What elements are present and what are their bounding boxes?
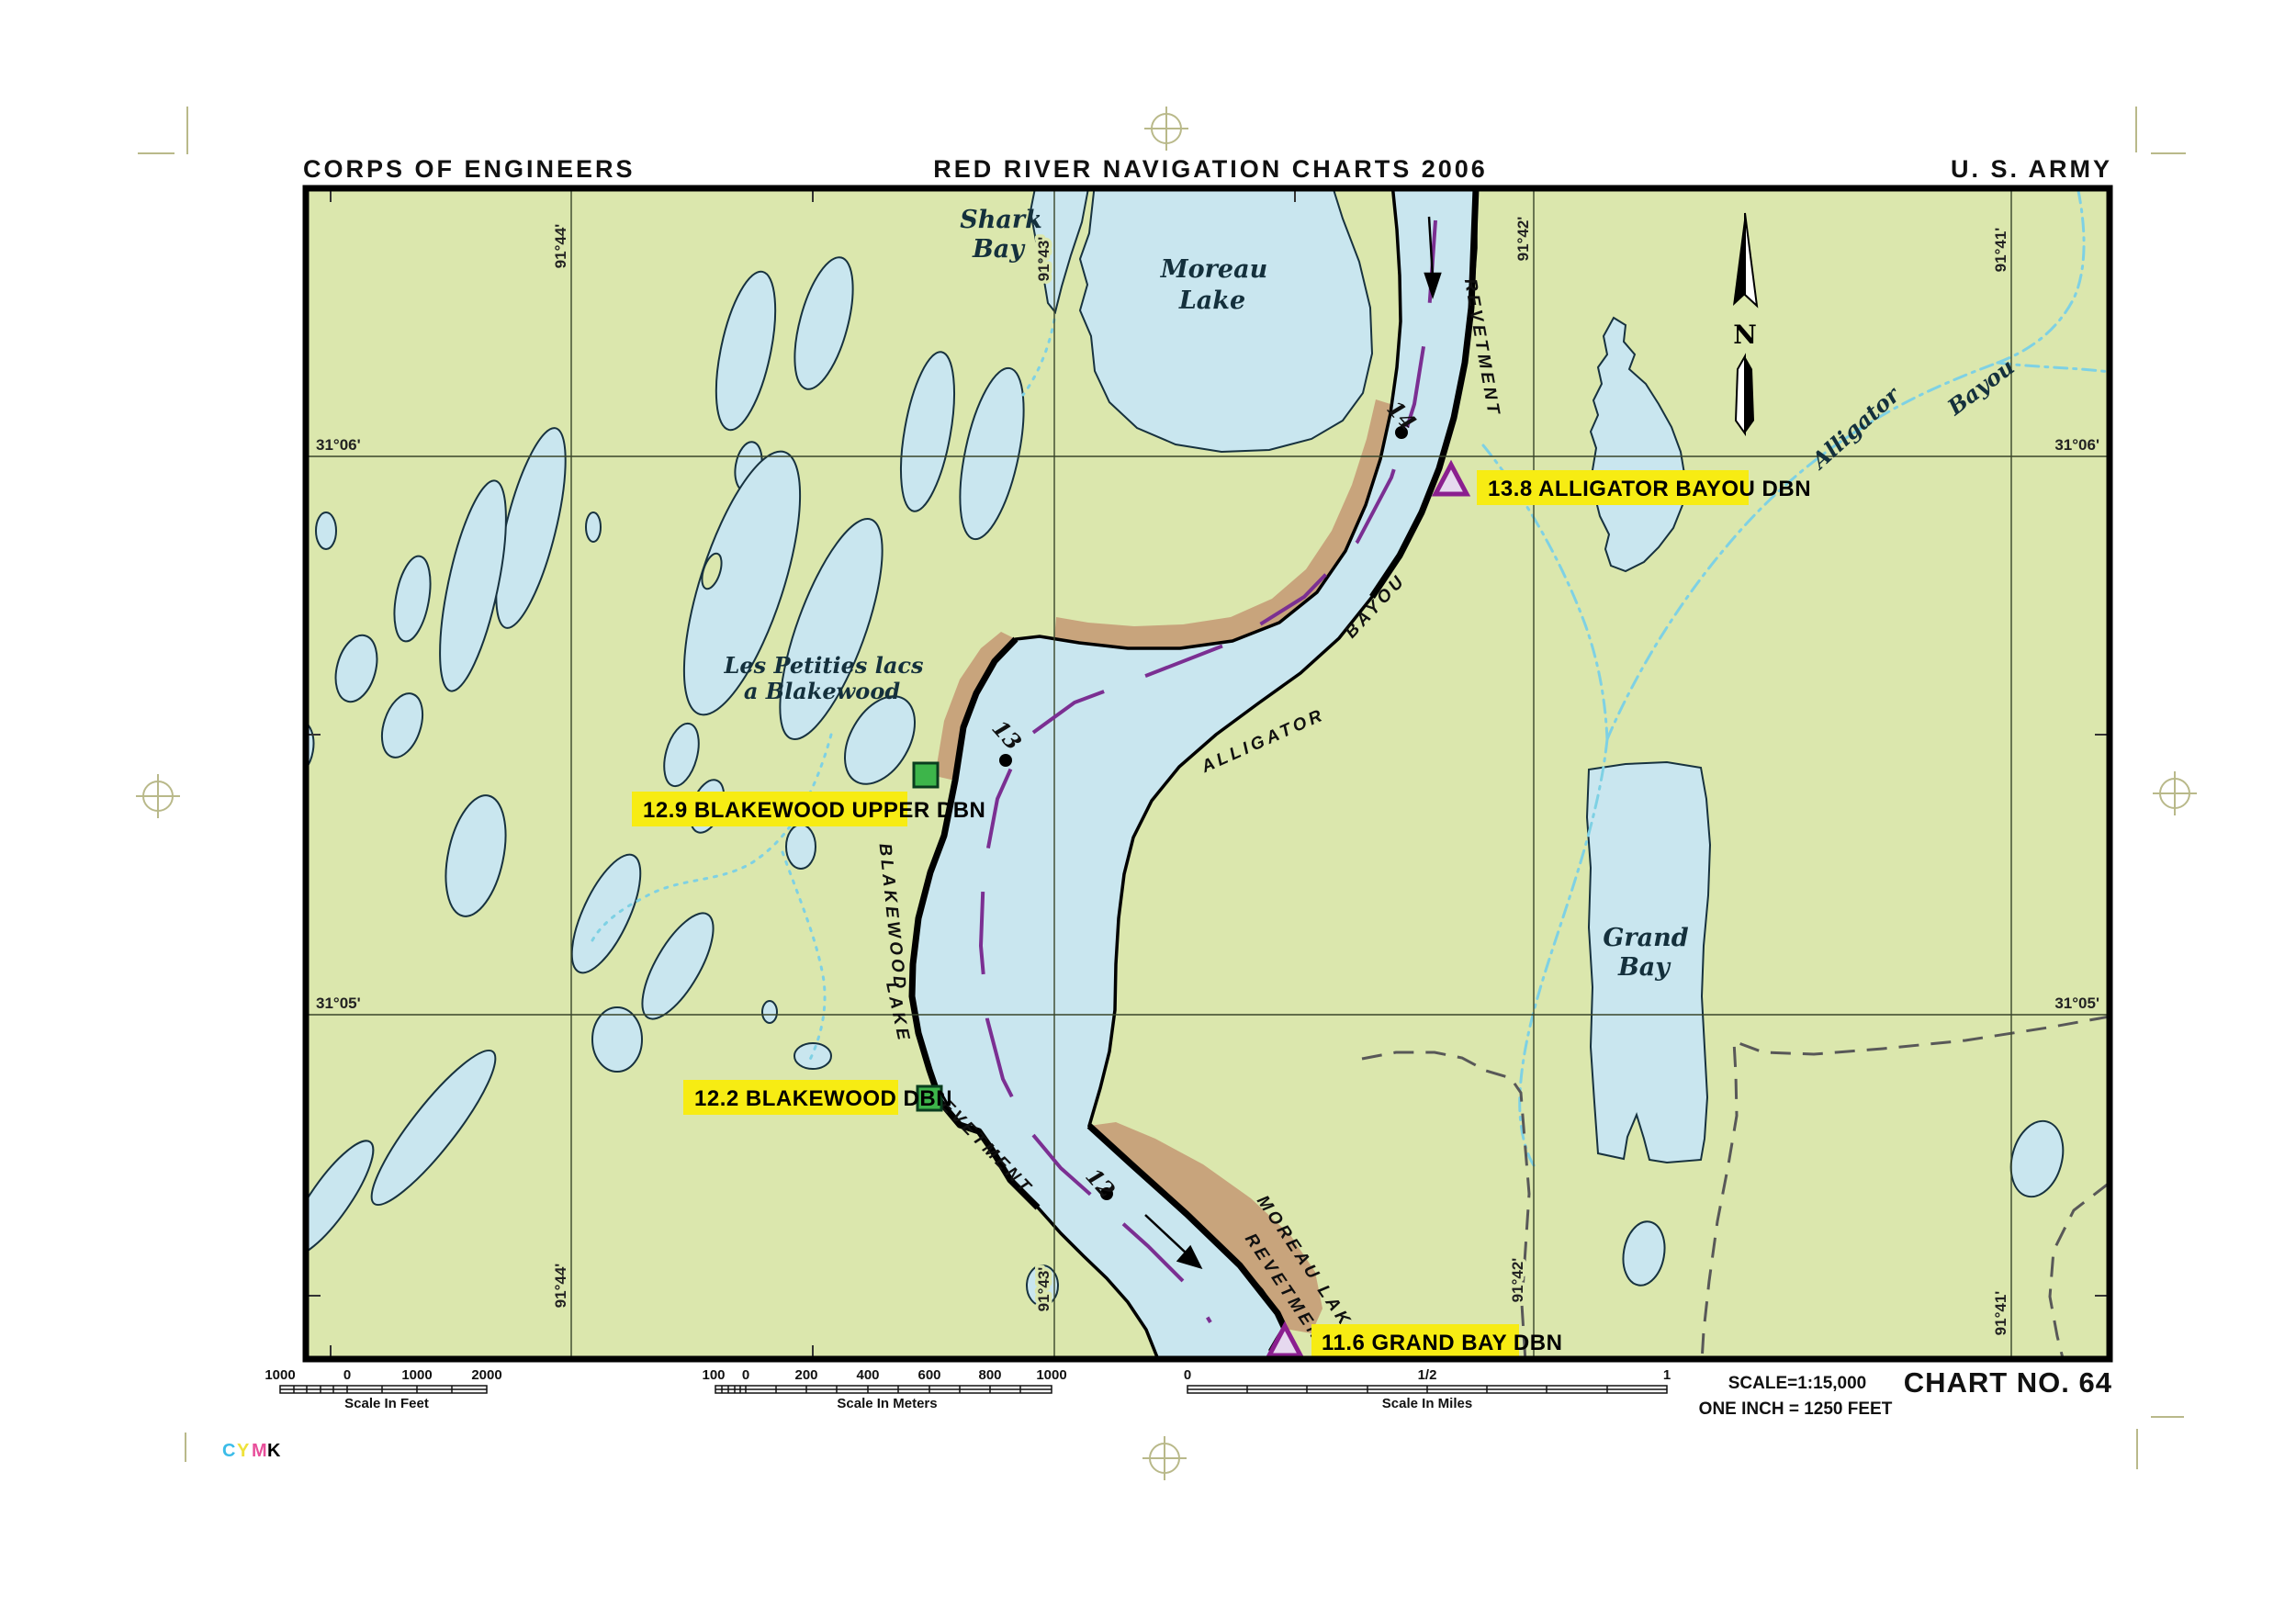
north-label: N — [1733, 320, 1757, 350]
shark-bay-label-2: Bay — [972, 235, 1026, 264]
m-tick-3: 400 — [856, 1367, 879, 1383]
m-tick-1: 0 — [742, 1367, 749, 1383]
dbn-label-grand-bay: 11.6 GRAND BAY DBN — [1322, 1331, 1562, 1355]
navigation-chart: CORPS OF ENGINEERS RED RIVER NAVIGATION … — [0, 0, 2296, 1607]
m-tick-6: 1000 — [1036, 1367, 1066, 1383]
cymk-registration: C Y M K — [222, 1441, 281, 1461]
square-daybeacon-12-9 — [914, 763, 938, 787]
header-army: U. S. ARMY — [1951, 155, 2112, 183]
lon-91-44-bottom: 91°44' — [552, 1264, 569, 1309]
scale-ratio: SCALE=1:15,000 — [1728, 1374, 1867, 1393]
feet-caption: Scale In Feet — [344, 1396, 429, 1411]
m-tick-2: 200 — [794, 1367, 817, 1383]
miles-caption: Scale In Miles — [1382, 1396, 1472, 1411]
chart-number: CHART NO. 64 — [1904, 1366, 2112, 1399]
cymk-c: C — [222, 1441, 235, 1461]
lon-91-44-top: 91°44' — [552, 224, 569, 269]
lat-31-05-left: 31°05' — [316, 995, 361, 1012]
lon-91-42-bottom: 91°42' — [1509, 1258, 1526, 1303]
les-petities-label-1: Les Petities lacs — [723, 652, 924, 679]
lat-31-06-right: 31°06' — [2054, 436, 2099, 454]
chart-page: CORPS OF ENGINEERS RED RIVER NAVIGATION … — [0, 0, 2296, 1607]
lon-91-41-top: 91°41' — [1992, 228, 2009, 273]
scalebar-feet: 1000 0 1000 2000 Scale In Feet — [264, 1367, 501, 1411]
moreau-lake-label-1: Moreau — [1160, 255, 1267, 284]
scalebar-meters: 100 0 200 400 600 800 1000 Scale In Mete… — [702, 1367, 1066, 1411]
lat-31-06-left: 31°06' — [316, 436, 361, 454]
grand-bay-label-2: Bay — [1617, 953, 1671, 982]
scale-inch: ONE INCH = 1250 FEET — [1699, 1399, 1893, 1419]
header-title: RED RIVER NAVIGATION CHARTS 2006 — [933, 155, 1488, 183]
les-petities-label-2: a Blakewood — [744, 678, 900, 704]
dbn-label-blakewood-upper: 12.9 BLAKEWOOD UPPER DBN — [643, 798, 985, 823]
lat-31-05-right: 31°05' — [2054, 995, 2099, 1012]
lon-91-43-bottom: 91°43' — [1035, 1267, 1052, 1312]
feet-tick-2: 1000 — [401, 1367, 432, 1383]
dbn-label-blakewood: 12.2 BLAKEWOOD DBN — [694, 1086, 952, 1111]
lon-91-43-top: 91°43' — [1035, 237, 1052, 282]
m-tick-0: 100 — [702, 1367, 725, 1383]
mi-tick-0: 0 — [1184, 1367, 1191, 1383]
feet-tick-1: 0 — [343, 1367, 351, 1383]
moreau-lake — [1080, 184, 1372, 452]
grand-bay-label-1: Grand — [1603, 924, 1688, 952]
shark-bay-label-1: Shark — [960, 206, 1042, 234]
mi-tick-2: 1 — [1663, 1367, 1671, 1383]
mi-tick-1: 1/2 — [1418, 1367, 1437, 1383]
cymk-k: K — [267, 1441, 281, 1461]
cymk-y: Y — [237, 1441, 250, 1461]
scalebar-miles: 0 1/2 1 Scale In Miles — [1184, 1367, 1671, 1411]
dbn-label-alligator-bayou: 13.8 ALLIGATOR BAYOU DBN — [1488, 477, 1811, 501]
feet-tick-3: 2000 — [471, 1367, 501, 1383]
header-corps: CORPS OF ENGINEERS — [303, 155, 636, 183]
m-tick-4: 600 — [917, 1367, 940, 1383]
meters-caption: Scale In Meters — [837, 1396, 937, 1411]
cymk-m: M — [252, 1441, 267, 1461]
moreau-lake-label-2: Lake — [1178, 287, 1245, 315]
lon-91-42-top: 91°42' — [1514, 217, 1532, 262]
m-tick-5: 800 — [978, 1367, 1001, 1383]
feet-tick-0: 1000 — [264, 1367, 295, 1383]
lon-91-41-bottom: 91°41' — [1992, 1291, 2009, 1336]
